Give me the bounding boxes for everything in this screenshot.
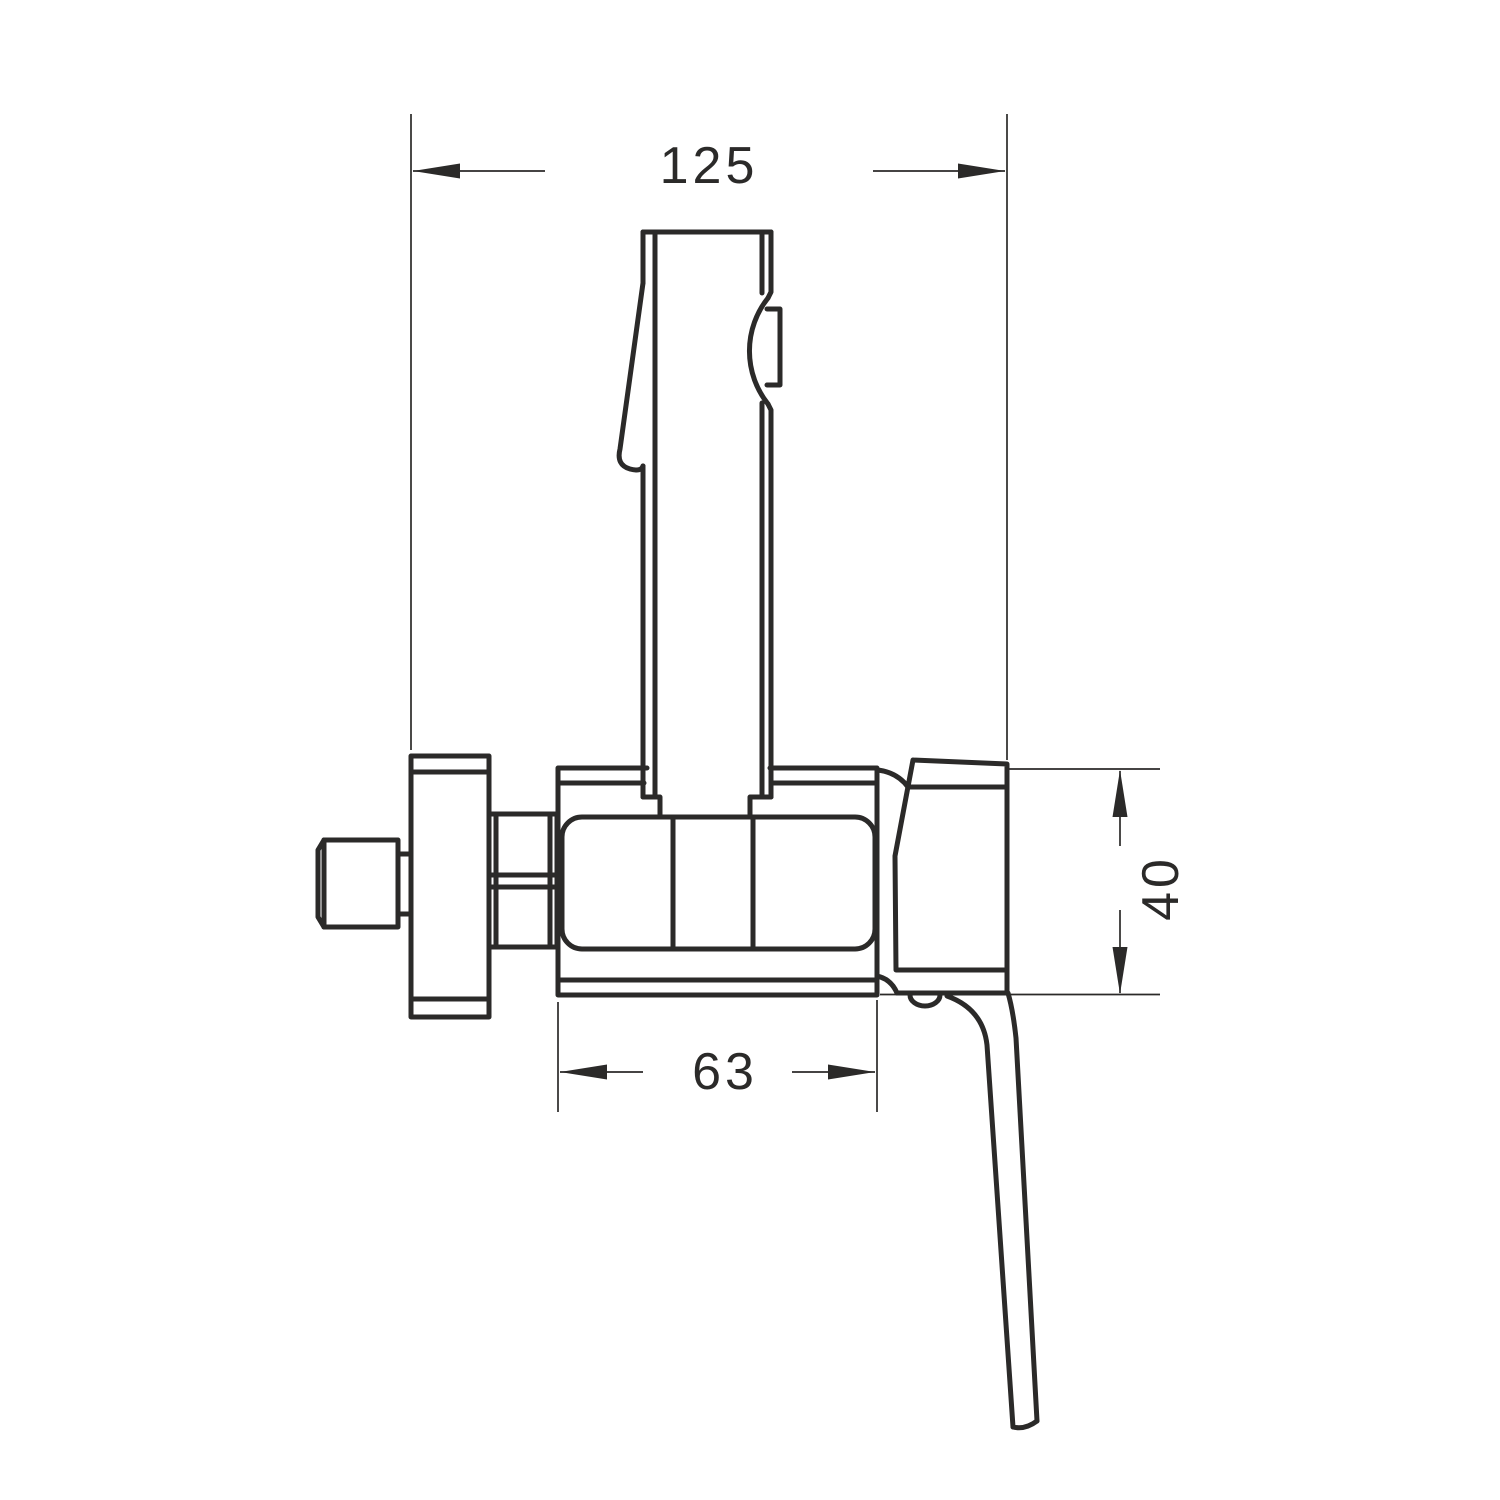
arrow-left-icon bbox=[560, 1065, 607, 1080]
body-to-base-curve-top bbox=[877, 770, 908, 787]
body-to-base-curve-bottom bbox=[877, 976, 897, 993]
hex-nut bbox=[489, 814, 557, 947]
head-right-outer-lower bbox=[768, 404, 771, 797]
bidet-sprayer-technical-drawing: 125 63 40 bbox=[0, 0, 1500, 1500]
lever-tip bbox=[1013, 1421, 1037, 1428]
handle-base-outline bbox=[895, 760, 1007, 993]
lever-left-edge bbox=[947, 996, 1013, 1427]
body-outline bbox=[558, 768, 877, 995]
dimension-overall-width: 125 bbox=[411, 114, 1007, 760]
handle-base bbox=[877, 760, 1007, 1006]
arrow-left-icon bbox=[413, 164, 460, 179]
head-right-outer-upper bbox=[768, 232, 771, 298]
dim-label-overall-width: 125 bbox=[660, 137, 759, 195]
dim-label-body-height: 40 bbox=[1132, 855, 1190, 921]
lever-right-edge bbox=[1008, 993, 1037, 1421]
dim-label-body-width: 63 bbox=[692, 1043, 758, 1101]
inlet-body bbox=[324, 840, 398, 927]
plate-outline bbox=[411, 756, 489, 1017]
inlet-connector bbox=[318, 840, 411, 927]
head-spray-button bbox=[767, 309, 780, 385]
arrow-right-icon bbox=[828, 1065, 875, 1080]
pivot-arc bbox=[910, 995, 940, 1006]
head-trigger bbox=[619, 283, 643, 470]
head-button-recess-arc bbox=[749, 298, 768, 404]
arrow-down-icon bbox=[1113, 947, 1128, 994]
shaft-step-right bbox=[750, 797, 771, 817]
arrow-right-icon bbox=[958, 164, 1005, 179]
wall-plate bbox=[411, 756, 489, 1017]
lever-handle bbox=[947, 993, 1037, 1428]
dimension-body-width: 63 bbox=[558, 1000, 877, 1112]
nut-outline bbox=[489, 814, 557, 947]
shaft-step-left bbox=[643, 797, 660, 817]
dimension-body-height: 40 bbox=[880, 769, 1190, 995]
valve-body bbox=[558, 768, 877, 995]
arrow-up-icon bbox=[1113, 770, 1128, 817]
technical-drawing-page: 125 63 40 bbox=[0, 0, 1500, 1500]
sprayer-head bbox=[619, 232, 780, 797]
cartridge bbox=[562, 817, 875, 949]
